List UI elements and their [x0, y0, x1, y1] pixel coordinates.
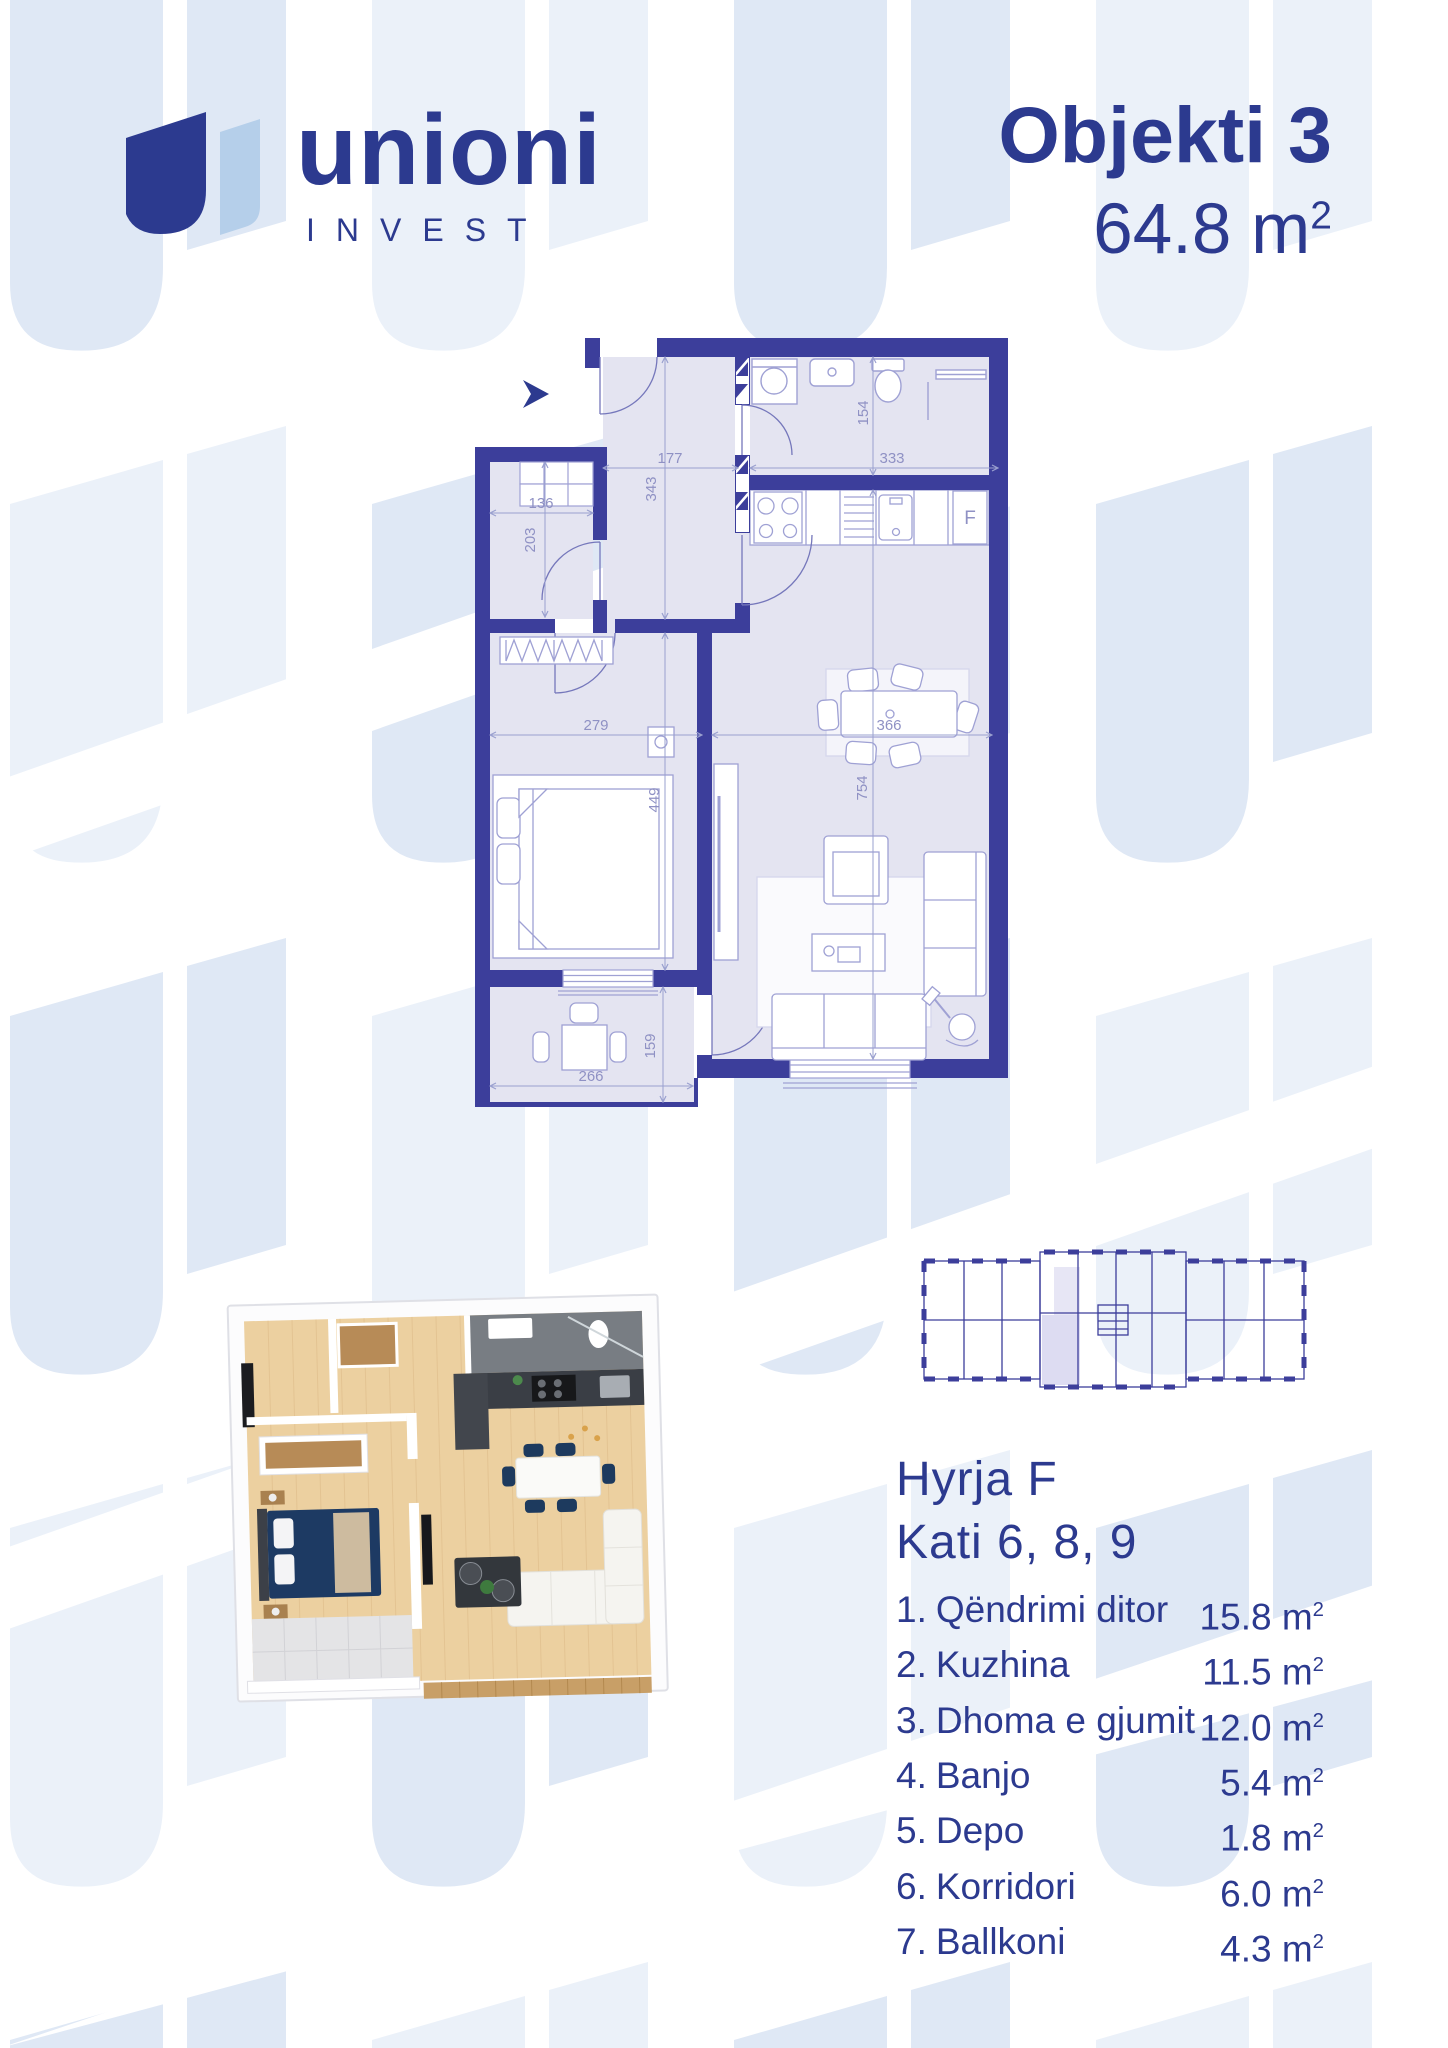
brand-logo-icon	[116, 106, 266, 246]
render-bathroom	[464, 1311, 643, 1374]
dim-depo-w: 136	[528, 495, 553, 512]
room-row: 4.Banjo 5.4 m2	[896, 1752, 1324, 1807]
plan-dining	[817, 663, 980, 769]
room-row: 3.Dhoma e gjumit 12.0 m2	[896, 1697, 1324, 1752]
flyer-page: unioni INVEST Objekti 3 64.8 m2	[0, 0, 1448, 2048]
room-row: 2.Kuzhina 11.5 m2	[896, 1641, 1324, 1696]
brand-name: unioni	[296, 100, 602, 200]
header: Objekti 3 64.8 m2	[998, 94, 1332, 270]
fridge-label: F	[964, 508, 976, 529]
plan-kitchen	[750, 490, 989, 545]
room-row: 1.Qëndrimi ditor 15.8 m2	[896, 1586, 1324, 1641]
dim-living-h: 754	[854, 775, 871, 800]
dim-balcony-w: 266	[578, 1068, 603, 1085]
render-balcony	[246, 1615, 420, 1693]
floors-label: Kati 6, 8, 9	[896, 1511, 1137, 1574]
dim-bath-h: 154	[855, 400, 872, 425]
room-row: 5.Depo 1.8 m2	[896, 1807, 1324, 1862]
page-title: Objekti 3	[998, 94, 1332, 177]
dim-hall-h: 343	[643, 476, 660, 501]
dim-living-w: 366	[876, 717, 901, 734]
keyplan-walls	[924, 1252, 1304, 1387]
brand-subtitle: INVEST	[306, 212, 548, 249]
entry-arrow-icon	[523, 380, 549, 408]
entrance-label: Hyrja F	[896, 1448, 1137, 1511]
dim-bed-w: 279	[583, 717, 608, 734]
dim-bath-w: 333	[879, 450, 904, 467]
room-row: 7.Ballkoni 4.3 m2	[896, 1918, 1324, 1973]
dim-depo-h: 203	[522, 527, 539, 552]
unit-info: Hyrja F Kati 6, 8, 9	[896, 1448, 1137, 1574]
building-key-plan	[912, 1243, 1314, 1395]
room-list: 1.Qëndrimi ditor 15.8 m2 2.Kuzhina 11.5 …	[896, 1586, 1324, 1973]
keyplan-highlight	[1042, 1267, 1080, 1385]
render-3d	[205, 1262, 695, 1757]
render-bedroom	[255, 1434, 382, 1619]
dim-bed-h: 449	[646, 787, 663, 812]
floor-plan: 177 333 343 136 203 154 F 279 366 449 75…	[440, 320, 1030, 1130]
render-coffee-table	[454, 1556, 521, 1608]
dim-hall-w: 177	[657, 450, 682, 467]
dim-balcony-h: 159	[642, 1033, 659, 1058]
room-row: 6.Korridori 6.0 m2	[896, 1863, 1324, 1918]
total-area: 64.8 m2	[998, 189, 1332, 270]
